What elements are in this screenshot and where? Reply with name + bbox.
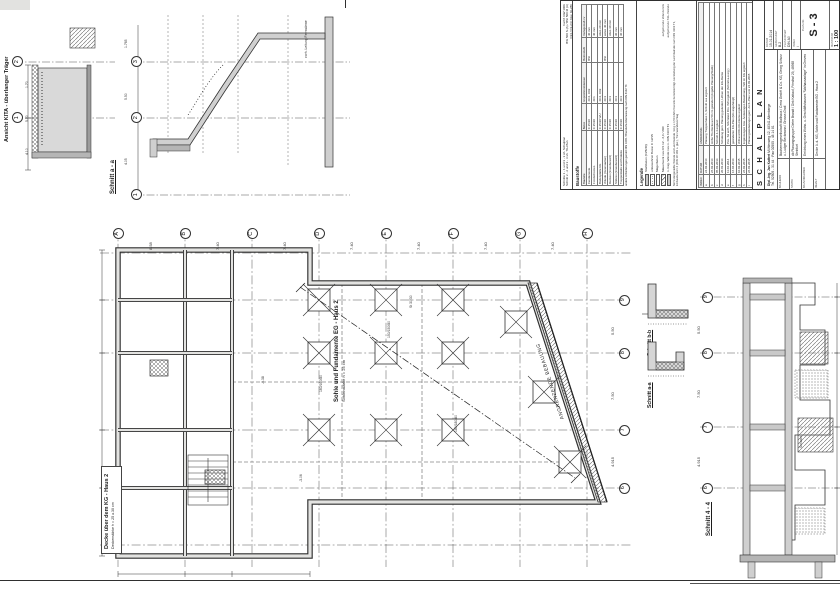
baustoffe-row: Stützen (Innenbereich)C 25/30XC130 mm bbox=[613, 5, 618, 186]
schnitt-references: Schnitte 1 - 1 und 3 - 3 sh. SchalplanSc… bbox=[563, 137, 574, 186]
drawing-sheet: Ansicht KITA - überlanger Träger 2 1 1.7… bbox=[0, 0, 840, 594]
deck-subtitle: Deckenstärke h = 25 u.30 cm bbox=[112, 502, 116, 549]
section-aa-dim: 4.05 bbox=[125, 158, 128, 165]
section-aa-detail-title: Schnitt a-a bbox=[648, 382, 653, 408]
shaft-note: Schacht bbox=[800, 436, 803, 448]
dim-top: 8.58 bbox=[149, 242, 153, 250]
sheet-border-bottom2 bbox=[690, 583, 840, 584]
revision-row: i26.03.2015Planungsänderungen gem. Arch.… bbox=[747, 3, 752, 188]
title-field-row: Bauherr Bauherrengesellschaft Mallhaus /… bbox=[778, 50, 790, 189]
engineer-block: Dipl.-Ing. Jan Kattert Mühlenweg 12, 483… bbox=[765, 50, 778, 189]
grid-bubble-sec44: 8 bbox=[702, 348, 713, 359]
material-specs: hochf. GW 100bBSt 500 S (A) / BSt 500 M … bbox=[563, 4, 574, 44]
section-44-linework bbox=[700, 270, 840, 582]
dim-right: 4.915 bbox=[611, 457, 615, 467]
dim-right: 7.50 bbox=[611, 392, 615, 400]
dim-top: 7.40 bbox=[283, 242, 287, 250]
section-aa-grid-bubble: 2 bbox=[131, 112, 142, 123]
dim-top: 7.40 bbox=[350, 242, 354, 250]
legend-swatch bbox=[661, 174, 666, 186]
section-aa-dim: 1.765 bbox=[125, 40, 128, 49]
grid-bubble-right: 7 bbox=[619, 425, 630, 436]
grid-bubble-top: G bbox=[515, 228, 526, 239]
grid-bubble-top: H bbox=[582, 228, 593, 239]
kita-dim: 1.70 bbox=[26, 81, 29, 88]
legend-item: Stahlbeton (C25/30) bbox=[645, 4, 650, 186]
section-44-title: Schnitt 4 - 4 bbox=[706, 502, 712, 536]
baustoffe-row: Treppenläufe und PodesteC 25/30XC130 mm bbox=[619, 5, 624, 186]
dim-top: 7.40 bbox=[417, 242, 421, 250]
legend-item: Mauerwerk neu KS 12 - 2,0 / 2DF aufgehen… bbox=[661, 4, 666, 186]
deck-title: Decke über dem KG - Haus 2 bbox=[105, 474, 111, 549]
legend-swatch bbox=[667, 174, 672, 186]
sheet-corner-mark bbox=[0, 0, 30, 10]
meta-row: Index i bbox=[792, 1, 801, 49]
shaft bbox=[205, 470, 225, 484]
title-field-row: Inhalt Decke ü. d. KG, Sohle und Fundame… bbox=[814, 50, 826, 189]
kita-grid-bubble: 2 bbox=[12, 56, 23, 67]
title-field-row: Bauvorhaben Errichtung eines Wohn- u. Ge… bbox=[802, 50, 814, 189]
dim-top: 7.40 bbox=[551, 242, 555, 250]
baustoffe-section: Baustoffe Bauteile Beton Expositionsklas… bbox=[573, 1, 637, 189]
legend-item: unbewehrter Beton C 12/15 bbox=[650, 4, 655, 186]
grid-bubble-top: A bbox=[113, 228, 124, 239]
title-block-bottom: Dipl.-Ing. Jan Kattert Mühlenweg 12, 483… bbox=[765, 1, 840, 189]
footing-label: 180/180/80 bbox=[455, 415, 458, 432]
legend-item: n. trag. Wände neu n. DIN 4103 T1 aufgeh… bbox=[667, 4, 672, 186]
section-aa-linework bbox=[128, 5, 356, 205]
legend-swatch bbox=[650, 174, 655, 186]
level-mark: -3.06 bbox=[300, 474, 303, 482]
section-aa-note: vorh. Leitung Fernwärme bbox=[305, 20, 308, 58]
dim-top: 7.40 bbox=[216, 242, 220, 250]
kita-title: Ansicht KITA - überlanger Träger bbox=[5, 56, 11, 142]
meta-row: gezeichnet B.2 bbox=[774, 1, 783, 49]
section-aa-top-title: Schnitt a - a bbox=[110, 160, 116, 194]
grid-bubble-right: 8 bbox=[619, 348, 630, 359]
meta-row: Planformat DIN A0 bbox=[783, 1, 792, 49]
baustoffe-row: Decken (Innenbereich)C 25/30XC1oben 30 m… bbox=[608, 5, 613, 186]
legende-note: Nicht dargestellte Wände und Leichtwände… bbox=[673, 4, 680, 186]
legend-swatch bbox=[645, 174, 650, 186]
dim-right: 5.50 bbox=[611, 327, 615, 335]
grid-bubble-right: 9 bbox=[619, 295, 630, 306]
scale: Maßstab 1 : 100 bbox=[830, 1, 840, 49]
grid-bubble-right: 6 bbox=[619, 483, 630, 494]
dim-sec44: 4.915 bbox=[697, 457, 701, 467]
plan-title: Sohle und Fundamente EG - Haus 2 bbox=[334, 300, 340, 402]
baustoffe-row: Wände (Innen/außen)C 25/30XC1BStunten 40… bbox=[602, 5, 607, 186]
kita-grid-bubble: 1 bbox=[12, 112, 23, 123]
dim-sec44: 7.50 bbox=[697, 390, 701, 398]
kita-dim: 4.10 bbox=[26, 148, 29, 155]
detail-aa-linework bbox=[640, 338, 695, 386]
section-aa-grid-bubble: 1 bbox=[131, 189, 142, 200]
dim-sec44: 5.50 bbox=[697, 326, 701, 334]
grid-bubble-top: E bbox=[381, 228, 392, 239]
kita-dim: 5.00 bbox=[26, 115, 29, 122]
kita-linework bbox=[15, 20, 125, 185]
revisions-table: INDEX DATUM ÄNDERUNG a24.02.2014Planung … bbox=[698, 2, 753, 188]
grid-bubble-top: D bbox=[314, 228, 325, 239]
meta-row: Datum 15.01.2014 bbox=[765, 1, 774, 49]
baustoffe-title: Baustoffe bbox=[575, 4, 580, 186]
title-block: Schnitte 1 - 1 und 3 - 3 sh. SchalplanSc… bbox=[560, 0, 840, 190]
grid-bubble-sec44: 6 bbox=[702, 483, 713, 494]
footing-label: 160/160/80 bbox=[320, 375, 323, 392]
meta-column: Datum 15.01.2014 gezeichnet B.2 Planform… bbox=[765, 1, 840, 49]
section-aa-grid-bubble: 3 bbox=[131, 56, 142, 67]
plan-walls bbox=[118, 250, 598, 556]
grid-bubble-top: B bbox=[180, 228, 191, 239]
baustoffe-footnote: andere Anforderungen gemäß DIN 1045 / Br… bbox=[625, 4, 628, 186]
title-field-row: Statik db Planungsgruppe Dieter Brandt /… bbox=[790, 50, 802, 189]
grid-bubble-sec44: 7 bbox=[702, 422, 713, 433]
legende-section: Legende Stahlbeton (C25/30) unbewehrter … bbox=[637, 1, 697, 189]
detail-bb-linework bbox=[640, 280, 695, 332]
column-label: St 30/30 bbox=[410, 295, 413, 308]
revisions-section: INDEX DATUM ÄNDERUNG a24.02.2014Planung … bbox=[697, 1, 753, 189]
grid-bubble-sec44: 9 bbox=[702, 292, 713, 303]
legend-item: Magerbeton bbox=[656, 4, 661, 186]
shaft bbox=[150, 360, 168, 376]
section-aa-dim: 5.50 bbox=[125, 93, 128, 100]
plan-type: S C H A L P L A N bbox=[753, 1, 765, 189]
plan-number: Plan-Nr. S - 3 bbox=[801, 1, 830, 49]
plan-subtitle: Sohlenstärke h = 25 cm bbox=[342, 360, 346, 402]
baustoffe-table: Bauteile Beton Expositionsklassen Betons… bbox=[581, 4, 625, 186]
dim-top: 7.40 bbox=[484, 242, 488, 250]
title-block-notes: Schnitte 1 - 1 und 3 - 3 sh. SchalplanSc… bbox=[561, 1, 573, 189]
grid-bubble-top: C bbox=[247, 228, 258, 239]
footing-label: 150/150/80 bbox=[388, 321, 391, 338]
grid-bubble-top: F bbox=[448, 228, 459, 239]
legende-title: Legende bbox=[639, 4, 644, 186]
legend-swatch bbox=[656, 174, 661, 186]
level-mark: -0.38 bbox=[262, 376, 265, 384]
